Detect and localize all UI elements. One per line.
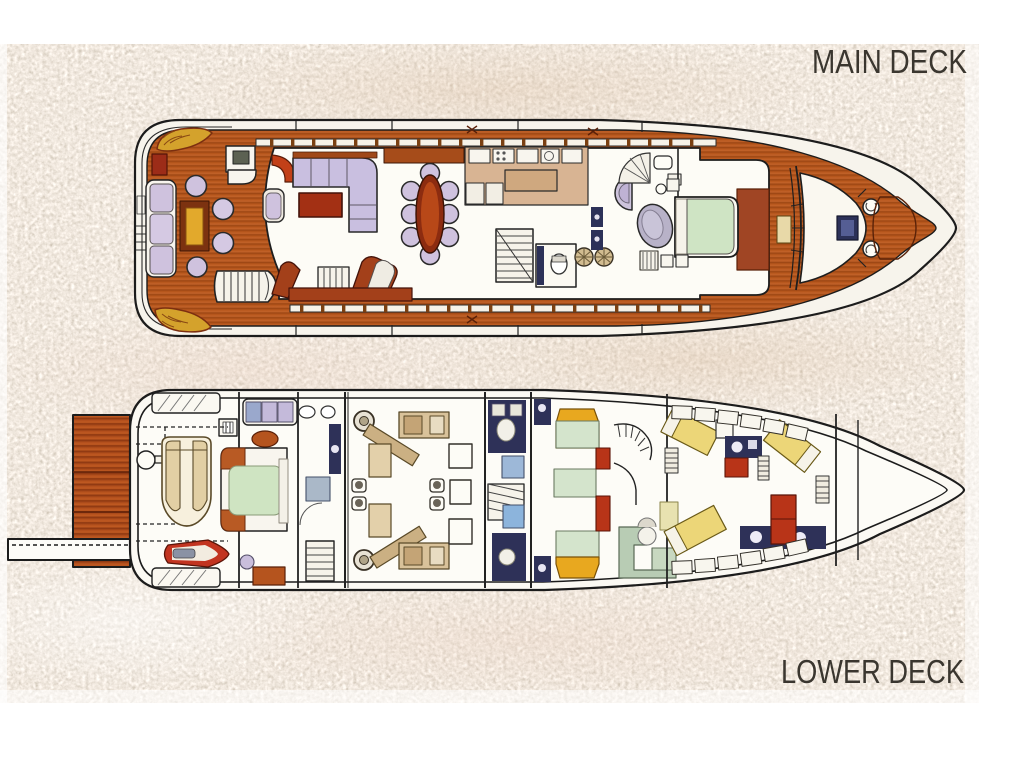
svg-text:LOWER DECK: LOWER DECK xyxy=(781,653,964,690)
svg-text:MAIN DECK: MAIN DECK xyxy=(812,43,967,80)
